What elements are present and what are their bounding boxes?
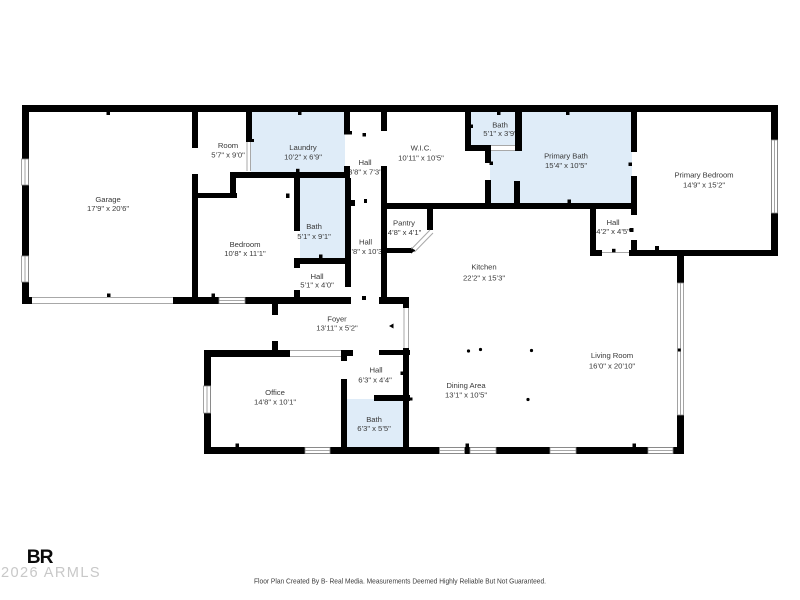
svg-text:W.I.C.: W.I.C. [411,144,432,153]
svg-text:5’7" x 9’0": 5’7" x 9’0" [211,151,245,160]
svg-text:10’8" x 11’1": 10’8" x 11’1" [224,249,266,258]
svg-text:Floor Plan Created By B- Real: Floor Plan Created By B- Real Media. Mea… [254,576,546,585]
svg-text:Office: Office [265,388,285,397]
svg-text:5’1" x 3’9": 5’1" x 3’9" [483,129,517,138]
svg-text:3’8" x 10’3": 3’8" x 10’3" [347,247,385,256]
svg-text:10’11" x 10’5": 10’11" x 10’5" [398,153,444,162]
svg-text:Bath: Bath [366,415,382,424]
svg-text:Laundry: Laundry [289,143,317,152]
svg-text:14’8" x 10’1": 14’8" x 10’1" [254,397,296,406]
svg-text:Hall: Hall [359,238,372,247]
svg-text:Bath: Bath [306,222,322,231]
svg-text:Hall: Hall [358,158,371,167]
svg-text:Hall: Hall [369,365,382,374]
svg-text:Pantry: Pantry [393,218,415,227]
svg-text:16’0" x 20’10": 16’0" x 20’10" [589,361,636,370]
svg-text:13’1" x 10’5": 13’1" x 10’5" [445,391,487,400]
svg-text:2026 ARMLS: 2026 ARMLS [1,565,101,581]
svg-text:10’2" x 6’9": 10’2" x 6’9" [284,153,322,162]
svg-text:14’9" x 15’2": 14’9" x 15’2" [683,181,725,190]
svg-text:Room: Room [218,141,238,150]
svg-text:Living Room: Living Room [591,351,633,360]
svg-text:5’1" x 4’0": 5’1" x 4’0" [300,281,334,290]
svg-text:Kitchen: Kitchen [471,263,496,272]
svg-text:4’8" x 4’1": 4’8" x 4’1" [388,228,422,237]
svg-text:Hall: Hall [606,218,619,227]
svg-text:Dining Area: Dining Area [446,381,486,390]
svg-text:Foyer: Foyer [327,315,347,324]
svg-text:Bedroom: Bedroom [230,240,261,249]
svg-text:13’11" x 5’2": 13’11" x 5’2" [316,324,358,333]
svg-text:6’3" x 4’4": 6’3" x 4’4" [358,375,392,384]
svg-text:Bath: Bath [492,120,508,129]
svg-text:Primary Bedroom: Primary Bedroom [674,171,733,180]
svg-text:5’1" x 9’1": 5’1" x 9’1" [297,232,331,241]
svg-text:15’4" x 10’5": 15’4" x 10’5" [545,161,587,170]
svg-text:17’9" x 20’6": 17’9" x 20’6" [87,204,129,213]
svg-text:6’3" x 5’5": 6’3" x 5’5" [357,424,391,433]
svg-text:22’2" x 15’3": 22’2" x 15’3" [463,273,505,282]
svg-text:Hall: Hall [310,272,323,281]
svg-text:Primary Bath: Primary Bath [544,151,588,160]
svg-text:4’2" x 4’5": 4’2" x 4’5" [596,227,630,236]
svg-text:3’8" x 7’3": 3’8" x 7’3" [348,168,382,177]
